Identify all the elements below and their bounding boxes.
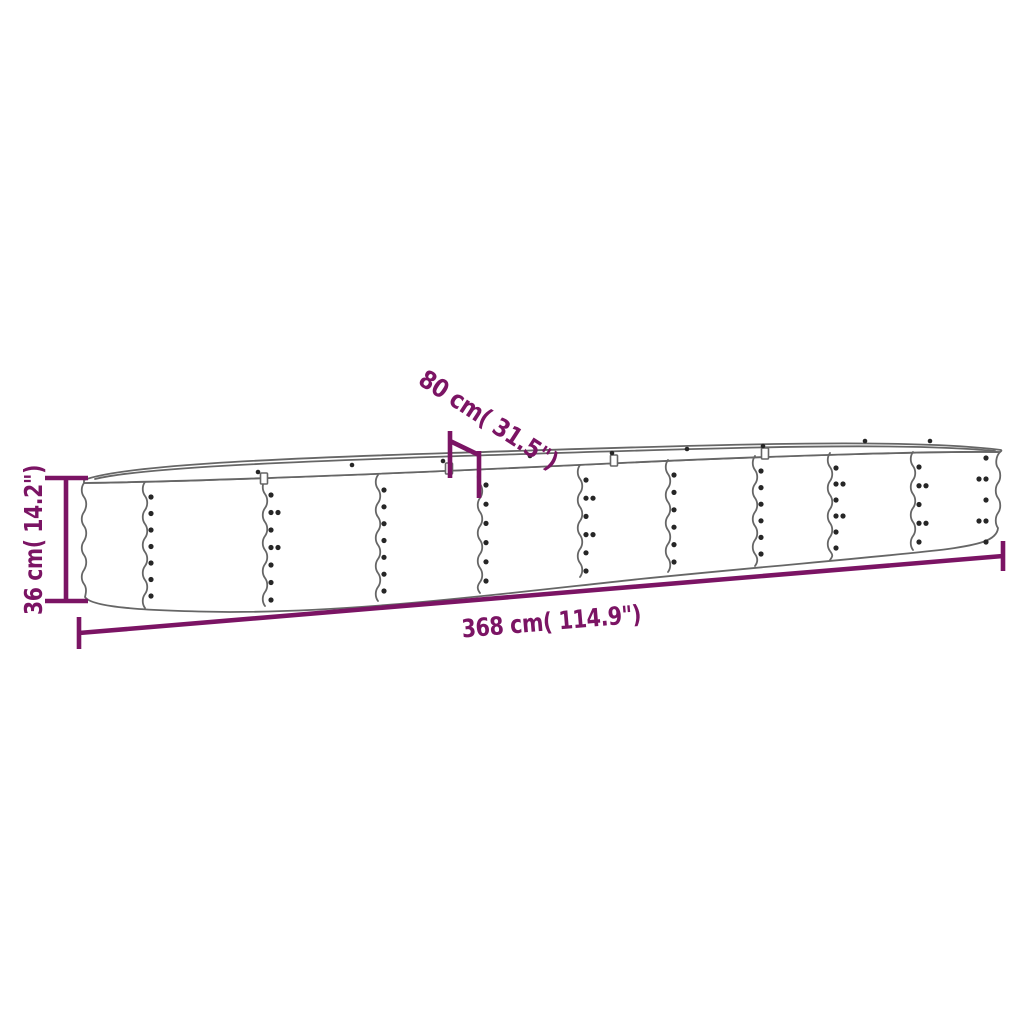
screw-dot bbox=[833, 529, 838, 534]
screw-dot bbox=[671, 525, 676, 530]
screw-dot bbox=[381, 521, 386, 526]
screw-dot bbox=[916, 539, 921, 544]
screw-dot bbox=[928, 439, 933, 444]
screw-dot bbox=[381, 572, 386, 577]
height-dimension-line bbox=[45, 478, 88, 601]
screw-dot bbox=[916, 502, 921, 507]
screw-dot bbox=[671, 559, 676, 564]
screw-dot bbox=[983, 497, 988, 502]
screw-dot bbox=[758, 502, 763, 507]
screw-dot bbox=[671, 490, 676, 495]
screw-dot bbox=[758, 535, 763, 540]
screw-dot bbox=[685, 447, 690, 452]
screw-dot bbox=[268, 510, 273, 515]
screw-dot bbox=[148, 560, 153, 565]
screw-dot bbox=[441, 459, 446, 464]
screw-dot bbox=[381, 538, 386, 543]
screw-dot bbox=[483, 540, 488, 545]
screw-dot bbox=[983, 455, 988, 460]
screw-dot bbox=[976, 476, 981, 481]
screw-dot bbox=[148, 544, 153, 549]
screw-dot bbox=[761, 444, 766, 449]
screw-dot bbox=[610, 451, 615, 456]
screw-dot bbox=[758, 518, 763, 523]
screw-dot bbox=[833, 513, 838, 518]
screw-dot bbox=[923, 521, 928, 526]
screw-dot bbox=[256, 470, 261, 475]
screw-dot bbox=[483, 559, 488, 564]
screw-dot bbox=[268, 562, 273, 567]
screw-dot bbox=[275, 510, 280, 515]
screw-dot bbox=[916, 483, 921, 488]
screw-dot bbox=[583, 496, 588, 501]
rim-clip bbox=[762, 448, 769, 459]
screw-dot bbox=[381, 555, 386, 560]
screw-dot bbox=[268, 545, 273, 550]
screw-dot bbox=[148, 577, 153, 582]
screw-dot bbox=[671, 507, 676, 512]
screw-dot bbox=[483, 521, 488, 526]
screw-dot bbox=[381, 504, 386, 509]
rim-clip bbox=[261, 473, 268, 484]
diagram-canvas: 36 cm( 14.2") 80 cm( 31.5") 368 cm( 114.… bbox=[0, 0, 1024, 1024]
product-dimension-diagram: 36 cm( 14.2") 80 cm( 31.5") 368 cm( 114.… bbox=[0, 0, 1024, 1024]
screw-dot bbox=[148, 593, 153, 598]
screw-dot bbox=[148, 511, 153, 516]
screw-dot bbox=[268, 527, 273, 532]
screw-dot bbox=[833, 497, 838, 502]
screw-dot bbox=[590, 496, 595, 501]
screw-dot bbox=[916, 464, 921, 469]
screw-dot bbox=[833, 465, 838, 470]
rim-clip bbox=[611, 455, 618, 466]
screw-dot bbox=[275, 545, 280, 550]
screw-dot bbox=[840, 481, 845, 486]
screw-dot bbox=[350, 463, 355, 468]
screw-dot bbox=[590, 532, 595, 537]
screw-dot bbox=[983, 539, 988, 544]
screw-dot bbox=[863, 439, 868, 444]
screw-dot bbox=[583, 514, 588, 519]
screw-dot bbox=[583, 532, 588, 537]
screw-dot bbox=[148, 494, 153, 499]
screw-dot bbox=[483, 502, 488, 507]
height-dimension-label: 36 cm( 14.2") bbox=[19, 465, 48, 615]
screw-dot bbox=[381, 487, 386, 492]
screw-dot bbox=[983, 476, 988, 481]
screw-dot bbox=[983, 518, 988, 523]
screw-dot bbox=[833, 545, 838, 550]
length-dimension-label: 368 cm( 114.9") bbox=[460, 600, 642, 644]
screw-dot bbox=[840, 513, 845, 518]
screw-dot bbox=[483, 482, 488, 487]
screw-dot bbox=[758, 485, 763, 490]
screw-dot bbox=[916, 521, 921, 526]
screw-dot bbox=[381, 588, 386, 593]
screw-dot bbox=[976, 518, 981, 523]
screw-dot bbox=[758, 551, 763, 556]
screw-dot bbox=[833, 481, 838, 486]
screw-dot bbox=[923, 483, 928, 488]
screw-dot bbox=[148, 527, 153, 532]
screw-dot bbox=[583, 550, 588, 555]
screw-dot bbox=[268, 492, 273, 497]
screw-dot bbox=[671, 472, 676, 477]
screw-dot bbox=[268, 580, 273, 585]
screw-dot bbox=[583, 568, 588, 573]
screw-dot bbox=[583, 477, 588, 482]
screw-dot bbox=[268, 597, 273, 602]
screw-dot bbox=[671, 542, 676, 547]
screw-dot bbox=[758, 468, 763, 473]
screw-dot bbox=[483, 578, 488, 583]
